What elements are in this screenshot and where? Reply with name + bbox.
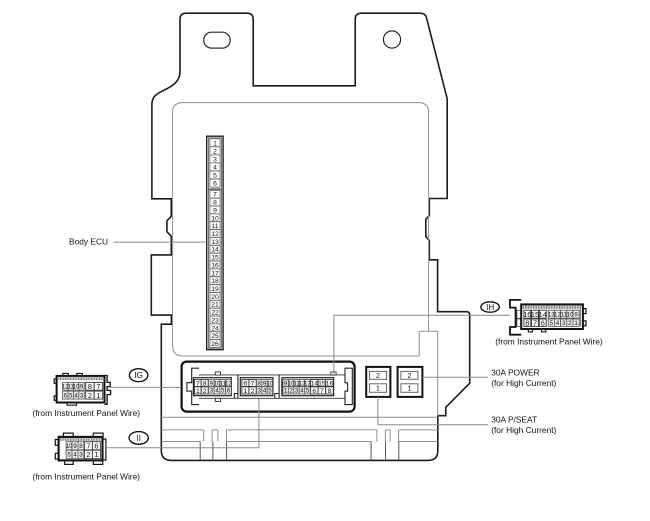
svg-text:16: 16 [211, 262, 219, 269]
svg-text:7: 7 [213, 192, 217, 199]
svg-text:23: 23 [211, 317, 219, 324]
svg-text:9: 9 [80, 384, 84, 391]
svg-text:4: 4 [263, 388, 267, 395]
svg-text:5: 5 [268, 388, 272, 395]
svg-text:9: 9 [213, 207, 217, 214]
svg-text:2: 2 [203, 388, 207, 395]
svg-text:3: 3 [562, 320, 566, 327]
svg-text:3: 3 [210, 388, 214, 395]
svg-text:25: 25 [211, 333, 219, 340]
svg-text:6: 6 [63, 392, 67, 399]
svg-text:(from Instrument Panel Wire): (from Instrument Panel Wire) [33, 408, 141, 418]
svg-text:6: 6 [541, 319, 545, 328]
svg-text:12: 12 [211, 231, 219, 238]
svg-text:IH: IH [486, 303, 494, 312]
svg-text:2: 2 [568, 320, 572, 327]
svg-text:22: 22 [211, 310, 219, 317]
svg-text:11: 11 [211, 223, 218, 230]
svg-text:26: 26 [211, 341, 219, 348]
svg-text:5: 5 [550, 320, 554, 327]
svg-text:21: 21 [211, 302, 219, 309]
svg-text:18: 18 [211, 278, 219, 285]
svg-text:10: 10 [266, 380, 273, 387]
svg-text:5: 5 [306, 388, 310, 395]
svg-text:3: 3 [257, 388, 261, 395]
svg-text:1: 1 [244, 388, 248, 395]
svg-text:20: 20 [211, 294, 219, 301]
svg-text:9: 9 [73, 443, 77, 450]
svg-text:2: 2 [86, 450, 90, 459]
svg-text:Body ECU: Body ECU [69, 236, 108, 246]
svg-text:1: 1 [574, 320, 578, 327]
svg-text:7: 7 [533, 319, 537, 328]
svg-text:2: 2 [289, 388, 293, 395]
svg-text:3: 3 [295, 388, 299, 395]
svg-text:3: 3 [79, 452, 83, 459]
svg-text:3: 3 [213, 156, 217, 163]
svg-text:6: 6 [227, 388, 231, 395]
svg-text:3: 3 [80, 392, 84, 399]
svg-text:6: 6 [312, 388, 316, 395]
svg-text:4: 4 [74, 392, 78, 399]
svg-text:19: 19 [211, 286, 219, 293]
svg-text:4: 4 [215, 388, 219, 395]
svg-text:24: 24 [211, 325, 219, 332]
svg-text:2: 2 [376, 373, 380, 380]
svg-text:1: 1 [284, 388, 288, 395]
svg-text:7: 7 [96, 382, 100, 391]
svg-text:2: 2 [251, 388, 255, 395]
svg-text:(from Instrument Panel Wire): (from Instrument Panel Wire) [495, 336, 603, 346]
svg-text:13: 13 [211, 239, 219, 246]
svg-text:4: 4 [556, 320, 560, 327]
svg-text:IG: IG [134, 371, 142, 380]
svg-text:4: 4 [300, 388, 304, 395]
svg-text:14: 14 [211, 247, 219, 254]
svg-text:(from Instrument Panel Wire): (from Instrument Panel Wire) [33, 471, 141, 481]
svg-text:12: 12 [225, 380, 232, 387]
svg-text:6: 6 [94, 441, 98, 450]
svg-text:1: 1 [94, 450, 98, 459]
svg-text:1: 1 [376, 386, 380, 393]
svg-text:8: 8 [88, 382, 92, 391]
svg-text:(for High Current): (for High Current) [491, 425, 556, 435]
svg-text:5: 5 [67, 452, 71, 459]
svg-text:(for High Current): (for High Current) [491, 378, 556, 388]
svg-text:8: 8 [79, 443, 83, 450]
svg-text:10: 10 [566, 311, 573, 318]
svg-text:8: 8 [525, 319, 529, 328]
svg-text:2: 2 [88, 391, 92, 400]
svg-text:4: 4 [73, 452, 77, 459]
svg-text:10: 10 [66, 443, 73, 450]
svg-text:1: 1 [96, 391, 100, 400]
svg-text:10: 10 [211, 215, 219, 222]
svg-text:5: 5 [69, 392, 73, 399]
svg-text:4: 4 [213, 164, 217, 171]
svg-text:5: 5 [221, 388, 225, 395]
svg-text:15: 15 [211, 255, 219, 262]
svg-text:1: 1 [407, 386, 411, 393]
svg-text:17: 17 [211, 270, 219, 277]
svg-text:6: 6 [213, 181, 217, 188]
svg-text:1: 1 [213, 140, 217, 147]
svg-text:8: 8 [213, 200, 217, 207]
svg-text:2: 2 [213, 148, 217, 155]
svg-text:5: 5 [213, 173, 217, 180]
svg-text:30A POWER: 30A POWER [491, 368, 539, 378]
svg-text:II: II [136, 434, 140, 443]
svg-text:8: 8 [257, 380, 261, 387]
svg-text:7: 7 [320, 388, 324, 395]
svg-text:8: 8 [328, 388, 332, 395]
svg-text:30A P/SEAT: 30A P/SEAT [491, 414, 537, 424]
svg-text:9: 9 [574, 311, 578, 318]
svg-text:2: 2 [407, 373, 411, 380]
svg-text:7: 7 [86, 441, 90, 450]
svg-text:1: 1 [196, 388, 200, 395]
